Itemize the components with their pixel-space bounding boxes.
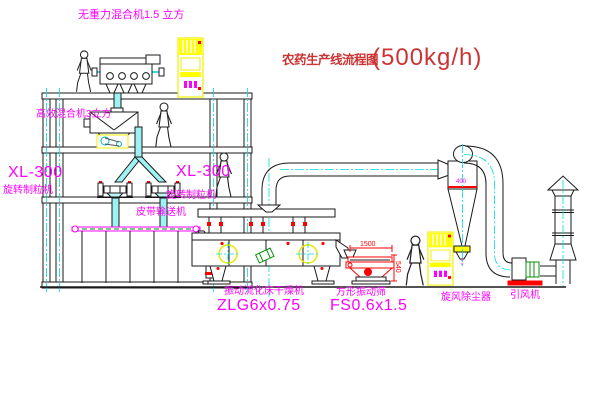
label-cyclone: 旋风除尘器 xyxy=(441,293,491,303)
label-sieve-model: FS0.6x1.5 xyxy=(330,298,407,314)
exhaust-duct-and-fan xyxy=(464,146,578,286)
rotary-granulator-left xyxy=(97,181,133,198)
exhaust-stack xyxy=(540,176,578,286)
worker-figure-floor2 xyxy=(156,103,172,147)
pesticide-production-line-diagram: 无重力混合机1.5 立方 农药生产线流程图 (500kg/h) 高效混合机3立方… xyxy=(0,0,600,403)
diagram-title: 农药生产线流程图 xyxy=(282,54,378,67)
dryer-exhaust-duct xyxy=(258,163,450,212)
label-granulator-left-model: XL-300 xyxy=(8,165,63,181)
label-dryer-model: ZLG6x0.75 xyxy=(217,298,301,314)
label-granulator-mid-name: 旋转制粒机 xyxy=(166,191,216,201)
y-splitter-chutes xyxy=(115,157,166,182)
worker-figure-roof xyxy=(77,51,92,92)
label-granulator-left-name: 旋转制粒机 xyxy=(3,186,53,196)
worker-figure-ground xyxy=(406,236,424,285)
label-fan: 引风机 xyxy=(510,291,540,301)
dim-sieve-height: 540 xyxy=(394,261,401,273)
induced-draft-fan xyxy=(508,258,542,285)
fluid-bed-dryer xyxy=(192,209,348,284)
label-top-mixer: 无重力混合机1.5 立方 xyxy=(78,10,184,21)
control-cabinet-roof xyxy=(178,38,203,97)
dim-sieve-length: 1500 xyxy=(360,241,376,248)
gravity-free-mixer xyxy=(92,55,164,113)
label-belt-conveyor: 皮带输送机 xyxy=(136,208,186,218)
label-dryer-name: 振动流化床干燥机 xyxy=(224,287,304,297)
diagram-capacity: (500kg/h) xyxy=(372,46,482,70)
dim-cyclone: 400 xyxy=(456,179,466,185)
control-cabinet-ground xyxy=(428,232,453,285)
square-vibrating-sieve xyxy=(344,245,397,284)
label-floor2-mixer: 高效混合机3立方 xyxy=(36,110,112,120)
label-granulator-mid-model: XL-300 xyxy=(176,164,231,180)
